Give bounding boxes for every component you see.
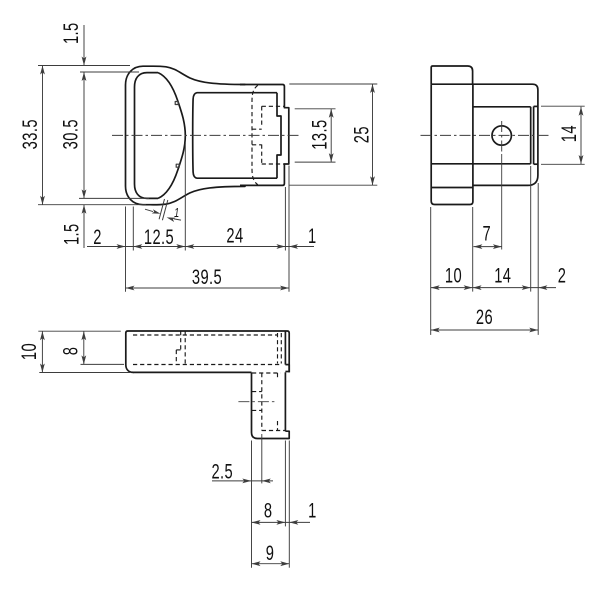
svg-text:30.5: 30.5	[59, 119, 82, 149]
svg-text:26: 26	[476, 305, 493, 328]
svg-text:39.5: 39.5	[192, 265, 222, 288]
svg-text:25: 25	[350, 126, 373, 143]
svg-text:8: 8	[264, 499, 273, 522]
svg-text:13.5: 13.5	[308, 119, 331, 149]
svg-text:2.5: 2.5	[211, 460, 233, 483]
svg-text:9: 9	[266, 541, 275, 564]
svg-text:10: 10	[445, 264, 462, 287]
svg-text:12.5: 12.5	[144, 225, 174, 248]
svg-text:10: 10	[18, 343, 41, 360]
svg-text:1: 1	[308, 499, 317, 522]
svg-text:14: 14	[494, 264, 511, 287]
svg-text:1.5: 1.5	[59, 22, 82, 44]
svg-text:2: 2	[558, 264, 567, 287]
svg-text:1: 1	[308, 224, 317, 247]
svg-text:14: 14	[557, 125, 580, 142]
svg-text:2: 2	[93, 225, 102, 248]
svg-text:1: 1	[174, 207, 179, 221]
svg-text:33.5: 33.5	[18, 119, 41, 149]
svg-text:7: 7	[483, 222, 492, 245]
svg-text:8: 8	[59, 347, 82, 356]
svg-text:1.5: 1.5	[60, 223, 83, 245]
svg-text:24: 24	[226, 224, 243, 247]
